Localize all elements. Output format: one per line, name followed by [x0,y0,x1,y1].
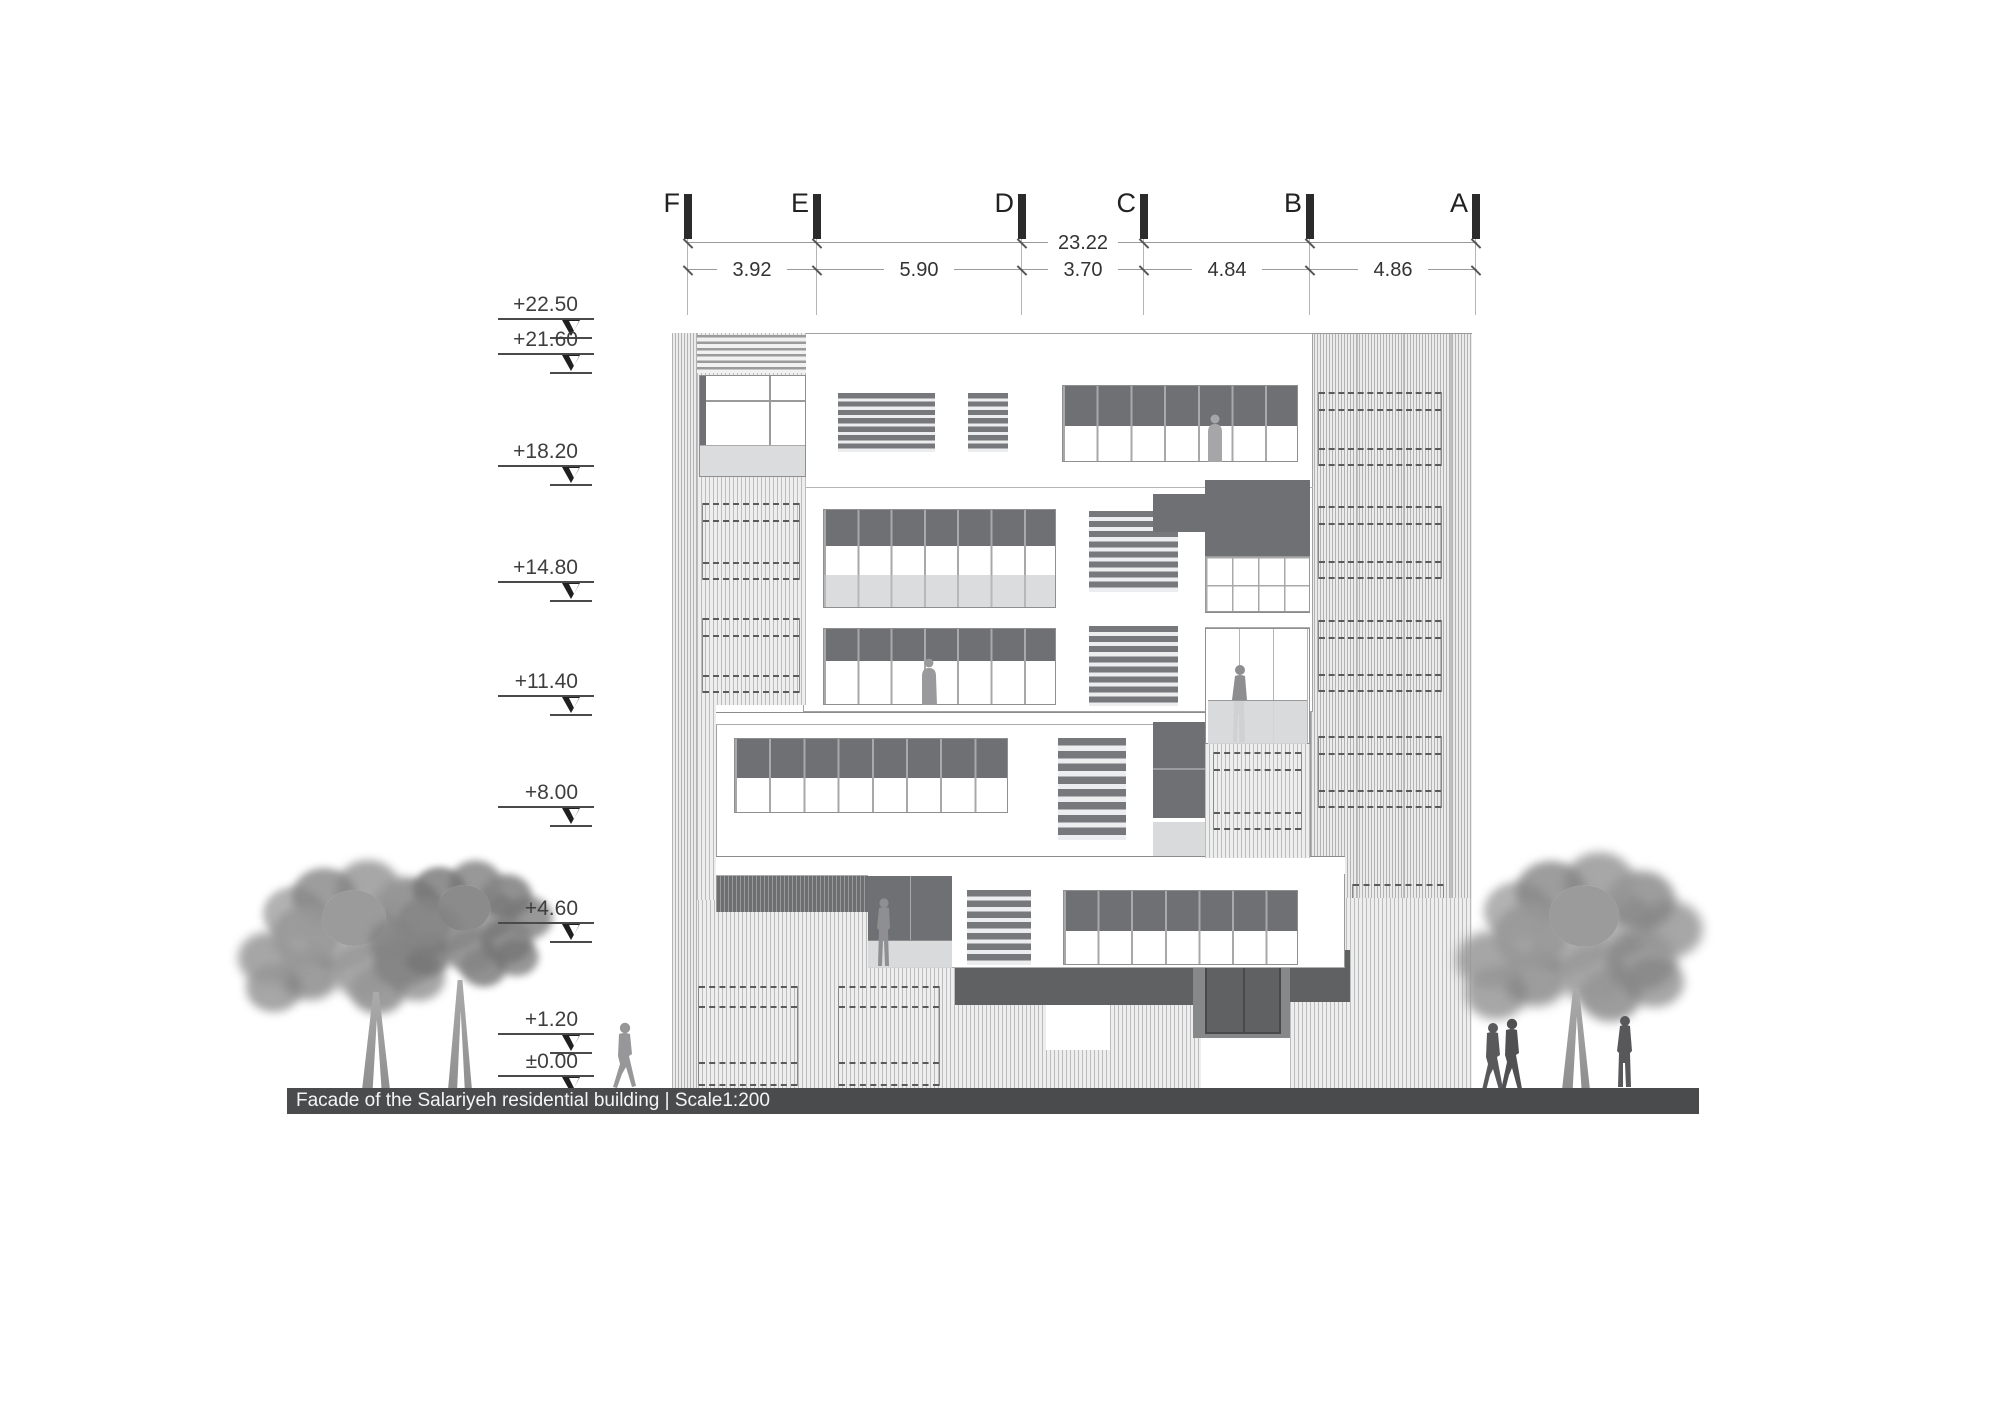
tree-trunk [362,992,390,1090]
grid-label: D [982,188,1014,219]
window-transom [1064,891,1297,931]
ribbon-window-band [1063,890,1298,965]
screened-window-frame [1318,506,1442,579]
window-transom [1063,386,1297,426]
shaded-louver-band [716,876,868,912]
tree-trunk [448,980,472,1090]
screened-window-frame [1318,620,1442,692]
dim-tick [1139,238,1150,249]
balcony-glass-railing [1153,822,1205,856]
window-mullion [1243,964,1245,1032]
ribbon-window-band [734,738,1008,813]
window-transom [735,739,1007,778]
ribbon-window-band [823,509,1056,608]
dim-tick [1305,238,1316,249]
window-glazing [824,546,1055,575]
dark-facade-panel [1153,722,1205,818]
dimension-total: 23.22 [1048,231,1118,255]
level-marker: +4.60 [498,896,594,924]
dimension-segment: 3.92 [717,258,787,282]
grid-label: B [1270,188,1302,219]
level-base-line [550,825,592,827]
screened-window-frame [1318,736,1442,808]
grid-label: C [1104,188,1136,219]
dimension-segment: 4.86 [1358,258,1428,282]
window-mullion [700,400,805,402]
drawing-caption: Facade of the Salariyeh residential buil… [296,1090,770,1111]
grid-bar-icon [684,194,692,239]
elevation-drawing: F E D C B A 23.22 [0,0,2000,1414]
slat-screen-strip [697,700,716,900]
louver-panel [697,335,806,373]
window-spandrel [824,575,1055,607]
grid-label: E [777,188,809,219]
level-base-line [550,600,592,602]
grid-extension-line [687,239,688,315]
louver-panel [968,393,1008,452]
dim-tick [1471,238,1482,249]
screened-window-frame [702,618,800,693]
level-label: +11.40 [498,669,594,697]
level-label: +22.50 [498,292,594,320]
person-silhouette [1496,1018,1530,1093]
dim-tick [683,265,694,276]
level-marker: +22.50 [498,292,594,320]
grid-extension-line [1475,239,1476,315]
tree-trunk [1562,988,1590,1090]
level-base-line [550,372,592,374]
grid-bar-icon [1472,194,1480,239]
screened-window-frame [1213,752,1302,830]
entrance-transom-window [1205,962,1281,1034]
person-silhouette [918,658,941,705]
dim-tick [1017,265,1028,276]
level-label: +21.60 [498,327,594,355]
window-spandrel [700,445,805,476]
grid-extension-line [1309,239,1310,315]
level-marker: +8.00 [498,780,594,808]
person-silhouette-standing [1610,1015,1638,1089]
level-label: +14.80 [498,555,594,583]
louver-panel [838,393,935,452]
screened-window-frame [698,986,798,1086]
ribbon-window-band [1062,385,1298,462]
slat-screen-strip [672,333,697,1088]
dim-tick [1305,265,1316,276]
wall-opening [1046,1005,1110,1050]
dark-facade-panel [1205,480,1310,556]
level-triangle-icon [562,808,580,824]
dimension-segment: 3.70 [1048,258,1118,282]
level-marker: +11.40 [498,669,594,697]
grid-extension-line [816,239,817,315]
floor-slab [1205,612,1310,628]
louver-panel [1058,738,1126,840]
dim-tick [1471,265,1482,276]
level-marker: +21.60 [498,327,594,355]
screened-window-frame [1318,392,1442,466]
dimension-segment: 5.90 [884,258,954,282]
entrance-doorway [1201,1038,1290,1088]
dim-tick [1139,265,1150,276]
level-triangle-icon [562,583,580,599]
screened-window-frame [838,986,940,1086]
level-triangle-icon [562,355,580,371]
grid-bar-icon [813,194,821,239]
grid-label: F [648,188,680,219]
window-transom [824,629,1055,661]
person-silhouette [872,898,896,968]
louver-panel [1089,626,1178,706]
dimension-segment: 4.84 [1192,258,1262,282]
window-jamb [700,376,706,445]
dimension-line-segments: 3.92 5.90 3.70 4.84 4.86 [688,269,1477,270]
level-triangle-icon [562,924,580,940]
tree-canopy [1549,885,1619,947]
level-marker: +14.80 [498,555,594,583]
window-glazing [1064,931,1297,964]
grid-label: A [1436,188,1468,219]
level-base-line [550,941,592,943]
level-label: +18.20 [498,439,594,467]
dim-tick [1017,238,1028,249]
grid-bar-icon [1306,194,1314,239]
window-glazing [735,778,1007,812]
dim-tick [812,265,823,276]
grid-bar-icon [1018,194,1026,239]
level-marker: ±0.00 [498,1049,594,1077]
balcony-window-grid [1205,556,1310,612]
level-triangle-icon [562,467,580,483]
balcony-glass-railing [1208,700,1307,744]
level-base-line [550,714,592,716]
level-label: +4.60 [498,896,594,924]
corner-window [699,375,806,477]
window-transom [824,510,1055,546]
grid-extension-line [1021,239,1022,315]
window-glazing [1063,426,1297,461]
level-triangle-icon [562,697,580,713]
dim-tick [812,238,823,249]
level-marker: +18.20 [498,439,594,467]
level-marker: +1.20 [498,1007,594,1035]
grid-extension-line [1143,239,1144,315]
person-silhouette [1204,414,1226,462]
level-base-line [550,484,592,486]
window-mullion [910,876,911,940]
screened-window-frame [702,503,800,580]
ground-bar: Facade of the Salariyeh residential buil… [287,1088,1699,1114]
level-label: +8.00 [498,780,594,808]
floor-slab [716,856,1345,876]
level-label: +1.20 [498,1007,594,1035]
panel-joint [1153,768,1205,770]
tree-canopy [438,885,490,931]
level-label: ±0.00 [498,1049,594,1077]
person-silhouette-walking [608,1022,646,1090]
dark-facade-panel [1153,494,1205,532]
tree-canopy [322,890,386,946]
dim-tick [683,238,694,249]
louver-panel [967,890,1031,965]
dimension-line-overall: 23.22 [688,242,1477,243]
grid-bar-icon [1140,194,1148,239]
